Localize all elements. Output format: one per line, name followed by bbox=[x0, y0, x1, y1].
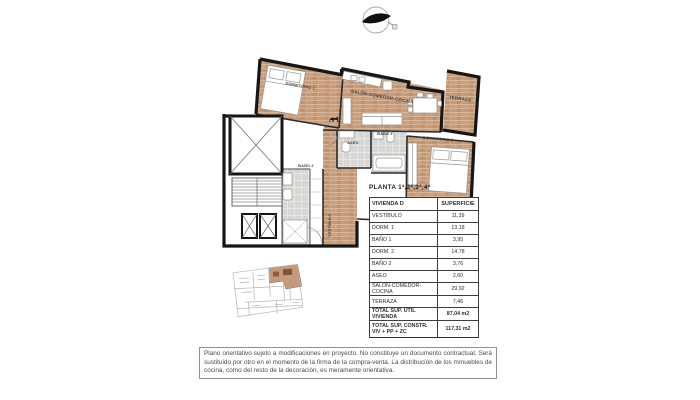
total-value: 117,31 m2 bbox=[438, 321, 479, 338]
row-label: DORM. 1 bbox=[370, 223, 438, 235]
closet-shelves bbox=[310, 179, 323, 231]
row-value: 7,46 bbox=[438, 296, 479, 308]
table-header-row: VIVIENDA D SUPERFICIE bbox=[370, 198, 479, 211]
room-terraza-floor bbox=[443, 71, 479, 135]
table-row-terraza: TERRAZA 7,46 bbox=[370, 296, 479, 308]
total-label: TOTAL SUP. ÚTIL VIVIENDA bbox=[370, 308, 438, 321]
table-title: PLANTA 1ª,2ª,3ª,4ª bbox=[369, 184, 430, 191]
table-row-dorm1: DORM. 1 13,18 bbox=[370, 223, 479, 235]
row-value: 29,92 bbox=[438, 283, 479, 296]
row-label: BAÑO 1 bbox=[370, 235, 438, 247]
sofa-icon bbox=[362, 113, 402, 125]
table-row-total-constr: TOTAL SUP. CONSTR. VIV + PP + ZC 117,31 … bbox=[370, 321, 479, 338]
row-value: 3,95 bbox=[438, 235, 479, 247]
disclaimer-text: Plano orientativo sujeto a modificacione… bbox=[199, 347, 497, 379]
row-value: 2,60 bbox=[438, 271, 479, 283]
row-label: SALÓN-COMEDOR-COCINA bbox=[370, 283, 438, 296]
row-value: 13,18 bbox=[438, 223, 479, 235]
bed2-icon bbox=[429, 147, 470, 194]
key-plan-highlight bbox=[269, 264, 302, 290]
north-arrow-icon bbox=[356, 4, 400, 40]
label-bano1: BAÑO 1 bbox=[377, 131, 392, 136]
row-label: BAÑO 2 bbox=[370, 259, 438, 271]
total-label: TOTAL SUP. CONSTR. VIV + PP + ZC bbox=[370, 321, 438, 338]
table-row-dorm2: DORM. 2 14,78 bbox=[370, 247, 479, 259]
row-value: 3,76 bbox=[438, 259, 479, 271]
row-label: VESTÍBULO bbox=[370, 211, 438, 223]
label-vestibulo: VESTÍBULO bbox=[327, 213, 332, 236]
table-row-aseo: ASEO 2,60 bbox=[370, 271, 479, 283]
label-aseo: ASEO bbox=[347, 141, 358, 145]
page: DORMITORIO 1 SALÓN-COMEDOR-COCINA TERRAZ… bbox=[0, 0, 700, 400]
elevator-shaft bbox=[230, 116, 282, 174]
stairs bbox=[232, 178, 282, 206]
total-label-line2: VIV + PP + ZC bbox=[372, 329, 435, 335]
table-row-total-util: TOTAL SUP. ÚTIL VIVIENDA 87,04 m2 bbox=[370, 308, 479, 321]
col-header-vivienda: VIVIENDA D bbox=[370, 198, 438, 211]
row-label: DORM. 2 bbox=[370, 247, 438, 259]
row-label: ASEO bbox=[370, 271, 438, 283]
service-shafts bbox=[242, 214, 276, 238]
key-plan bbox=[224, 257, 312, 327]
tv-unit-icon bbox=[343, 98, 351, 124]
table-row-vestibulo: VESTÍBULO 11,39 bbox=[370, 211, 479, 223]
total-value: 87,04 m2 bbox=[438, 308, 479, 321]
col-header-superficie: SUPERFICIE bbox=[438, 198, 479, 211]
row-value: 14,78 bbox=[438, 247, 479, 259]
row-label: TERRAZA bbox=[370, 296, 438, 308]
surface-table: VIVIENDA D SUPERFICIE VESTÍBULO 11,39 DO… bbox=[369, 197, 479, 338]
table-row-salon: SALÓN-COMEDOR-COCINA 29,92 bbox=[370, 283, 479, 296]
bed-icon bbox=[260, 65, 305, 115]
label-bano2: BAÑO 2 bbox=[298, 163, 313, 168]
row-value: 11,39 bbox=[438, 211, 479, 223]
table-row-bano2: BAÑO 2 3,76 bbox=[370, 259, 479, 271]
table-row-bano1: BAÑO 1 3,95 bbox=[370, 235, 479, 247]
